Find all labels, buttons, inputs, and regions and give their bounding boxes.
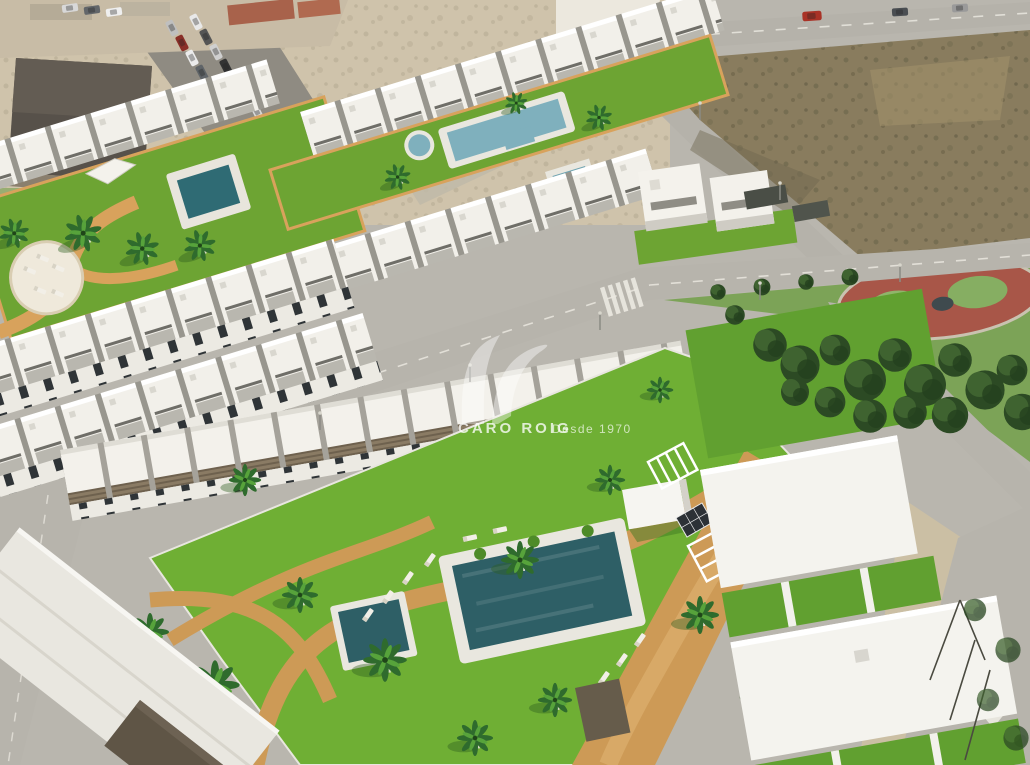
- town-roof: [30, 4, 92, 20]
- roof-vent: [854, 649, 870, 663]
- watermark-tagline-text: Desde 1970: [552, 422, 632, 436]
- red-van: [802, 11, 822, 22]
- town-roof: [120, 2, 170, 16]
- parked-car: [952, 3, 969, 12]
- aerial-development-render: CARO ROIG Desde 1970: [0, 0, 1030, 765]
- scene-svg: CARO ROIG Desde 1970: [0, 0, 1030, 765]
- parked-car: [892, 7, 909, 16]
